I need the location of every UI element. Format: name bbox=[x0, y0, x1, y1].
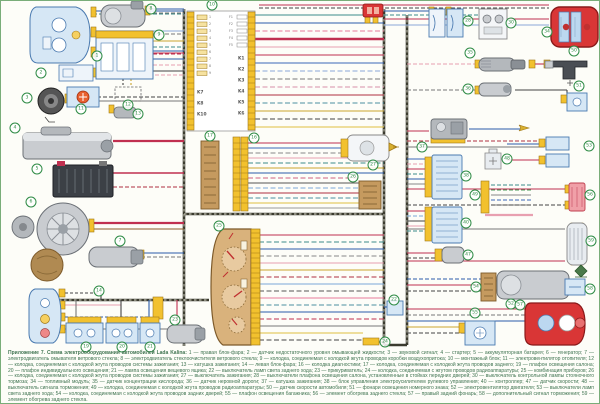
component-reverse-lamp-switches bbox=[546, 137, 569, 167]
relay-label: K4 bbox=[238, 90, 244, 95]
component-number-badge: 58 bbox=[585, 284, 596, 295]
component-number-badge: 23 bbox=[170, 315, 181, 326]
component-number-badge: 4 bbox=[10, 123, 21, 134]
fuse-label: 1 bbox=[209, 15, 211, 19]
component-number-badge: 16 bbox=[249, 133, 260, 144]
component-horn bbox=[38, 88, 64, 122]
component-ignition-switch bbox=[341, 135, 399, 161]
fuse-label: F3 bbox=[229, 29, 233, 33]
relay-label: K8 bbox=[197, 102, 203, 107]
component-headlight-right bbox=[30, 7, 90, 63]
component-rear-window-defogger bbox=[567, 223, 587, 265]
component-controller bbox=[432, 207, 462, 243]
component-number-badge: 7 bbox=[115, 236, 126, 247]
component-number-badge: 27 bbox=[368, 160, 379, 171]
component-number-badge: 47 bbox=[463, 250, 474, 261]
component-number-badge: 54 bbox=[471, 282, 482, 293]
legend-items: 1 — правая блок-фара; 2 — датчик недоста… bbox=[8, 350, 594, 403]
legend-paragraph: Приложение 7. Схема электрооборудования … bbox=[8, 351, 594, 404]
fuse-label: F4 bbox=[229, 36, 233, 40]
component-number-badge: 40 bbox=[461, 218, 472, 229]
component-number-badge: 49 bbox=[470, 190, 481, 201]
component-battery bbox=[53, 161, 113, 197]
component-brake-switch bbox=[485, 149, 501, 169]
component-number-badge: 35 bbox=[465, 48, 476, 59]
fuse-label: 6 bbox=[209, 50, 211, 54]
component-headlight-left bbox=[29, 289, 61, 343]
component-number-badge: 8 bbox=[146, 4, 157, 15]
fuse-label: 7 bbox=[209, 57, 211, 61]
component-number-badge: 17 bbox=[205, 131, 216, 142]
component-number-badge: 12 bbox=[123, 100, 134, 111]
relay-label: K2 bbox=[238, 68, 244, 73]
fuse-row-left-glyphs bbox=[197, 15, 207, 76]
block-right-bundle bbox=[255, 15, 384, 127]
component-trunk-lamp bbox=[465, 321, 495, 345]
component-wiper-motor bbox=[101, 1, 145, 27]
connector-diagnostic bbox=[233, 137, 248, 211]
component-number-badge: 1 bbox=[92, 51, 103, 62]
component-number-badge: 48 bbox=[502, 154, 513, 165]
component-number-badge: 30 bbox=[506, 18, 517, 29]
component-oxygen-sensor bbox=[479, 58, 525, 71]
component-number-badge: 34 bbox=[542, 27, 553, 38]
relay-label: K7 bbox=[197, 91, 203, 96]
legend-caption: Приложение 7. Схема электрооборудования … bbox=[1, 349, 600, 404]
component-number-badge: 51 bbox=[574, 81, 585, 92]
component-number-badge: 9 bbox=[154, 30, 165, 41]
fuse-label: F1 bbox=[229, 15, 233, 19]
component-rough-road-sensor bbox=[479, 83, 511, 96]
component-number-badge: 53 bbox=[584, 141, 595, 152]
relay-label: K1 bbox=[238, 57, 244, 62]
fuse-label: F2 bbox=[229, 22, 233, 26]
component-number-badge: 14 bbox=[94, 286, 105, 297]
component-fuel-module bbox=[551, 7, 598, 47]
fuse-label: 4 bbox=[209, 36, 211, 40]
component-number-badge: 55 bbox=[470, 308, 481, 319]
component-number-badge: 26 bbox=[348, 172, 359, 183]
component-air-intake-connector-box bbox=[96, 31, 153, 79]
component-number-badge: 28 bbox=[463, 16, 474, 27]
component-cigarette-lighter bbox=[167, 325, 205, 343]
component-number-badge: 38 bbox=[461, 171, 472, 182]
cluster-bundle bbox=[259, 235, 384, 340]
component-washer-pump bbox=[89, 247, 143, 267]
component-number-badge: 25 bbox=[214, 221, 225, 232]
component-number-badge: 13 bbox=[133, 109, 144, 120]
component-starter bbox=[23, 127, 113, 159]
connector-rear-doors bbox=[481, 273, 496, 301]
fuse-label: 5 bbox=[209, 43, 211, 47]
relay-label: K3 bbox=[238, 79, 244, 84]
component-speed-sensor-2 bbox=[442, 247, 464, 263]
component-number-badge: 24 bbox=[380, 337, 391, 348]
connector-rear-harness bbox=[201, 141, 219, 209]
fuse-label: 8 bbox=[209, 64, 211, 68]
component-parking-brake-switch bbox=[479, 9, 507, 39]
connector-ignition-harness bbox=[359, 181, 381, 209]
component-number-badge: 11 bbox=[76, 104, 87, 115]
component-stop-signal bbox=[565, 279, 585, 295]
component-number-badge: 36 bbox=[463, 84, 474, 95]
component-number-badge: 3 bbox=[22, 93, 33, 104]
fuse-label: F5 bbox=[229, 43, 233, 47]
component-number-badge: 6 bbox=[26, 197, 37, 208]
component-license-plate-lamp bbox=[567, 93, 587, 111]
interior-lamp-boxes bbox=[66, 323, 160, 343]
relay-label: K6 bbox=[238, 112, 244, 117]
component-number-badge: 10 bbox=[207, 0, 218, 11]
component-number-badge: 22 bbox=[389, 295, 400, 306]
component-mini-red-connector bbox=[363, 4, 383, 17]
wiring-diagram-page: 1234567891011121314161719202122232425262… bbox=[0, 0, 600, 404]
wiring-diagram-canvas: 1234567891011121314161719202122232425262… bbox=[1, 1, 600, 349]
component-number-badge: 50 bbox=[569, 46, 580, 57]
component-instrument-cluster bbox=[211, 229, 260, 345]
component-number-badge: 56 bbox=[585, 190, 596, 201]
component-epas-control-unit bbox=[432, 155, 462, 199]
component-heater-element bbox=[569, 183, 585, 211]
component-number-badge: 5 bbox=[32, 164, 43, 175]
relay-label: K5 bbox=[238, 101, 244, 106]
fuse-label: 9 bbox=[209, 71, 211, 75]
component-number-badge: 59 bbox=[586, 236, 597, 247]
fuse-label: 2 bbox=[209, 22, 211, 26]
component-number-badge: 57 bbox=[515, 300, 526, 311]
component-oil-pan bbox=[31, 249, 63, 281]
component-number-badge: 37 bbox=[417, 142, 428, 153]
component-rear-lamp-right bbox=[525, 303, 585, 345]
relay-label: K10 bbox=[197, 113, 207, 118]
component-washer-level-switch bbox=[59, 65, 93, 81]
fuse-label: 3 bbox=[209, 29, 211, 33]
component-number-badge: 2 bbox=[36, 68, 47, 79]
component-generator bbox=[12, 203, 89, 255]
